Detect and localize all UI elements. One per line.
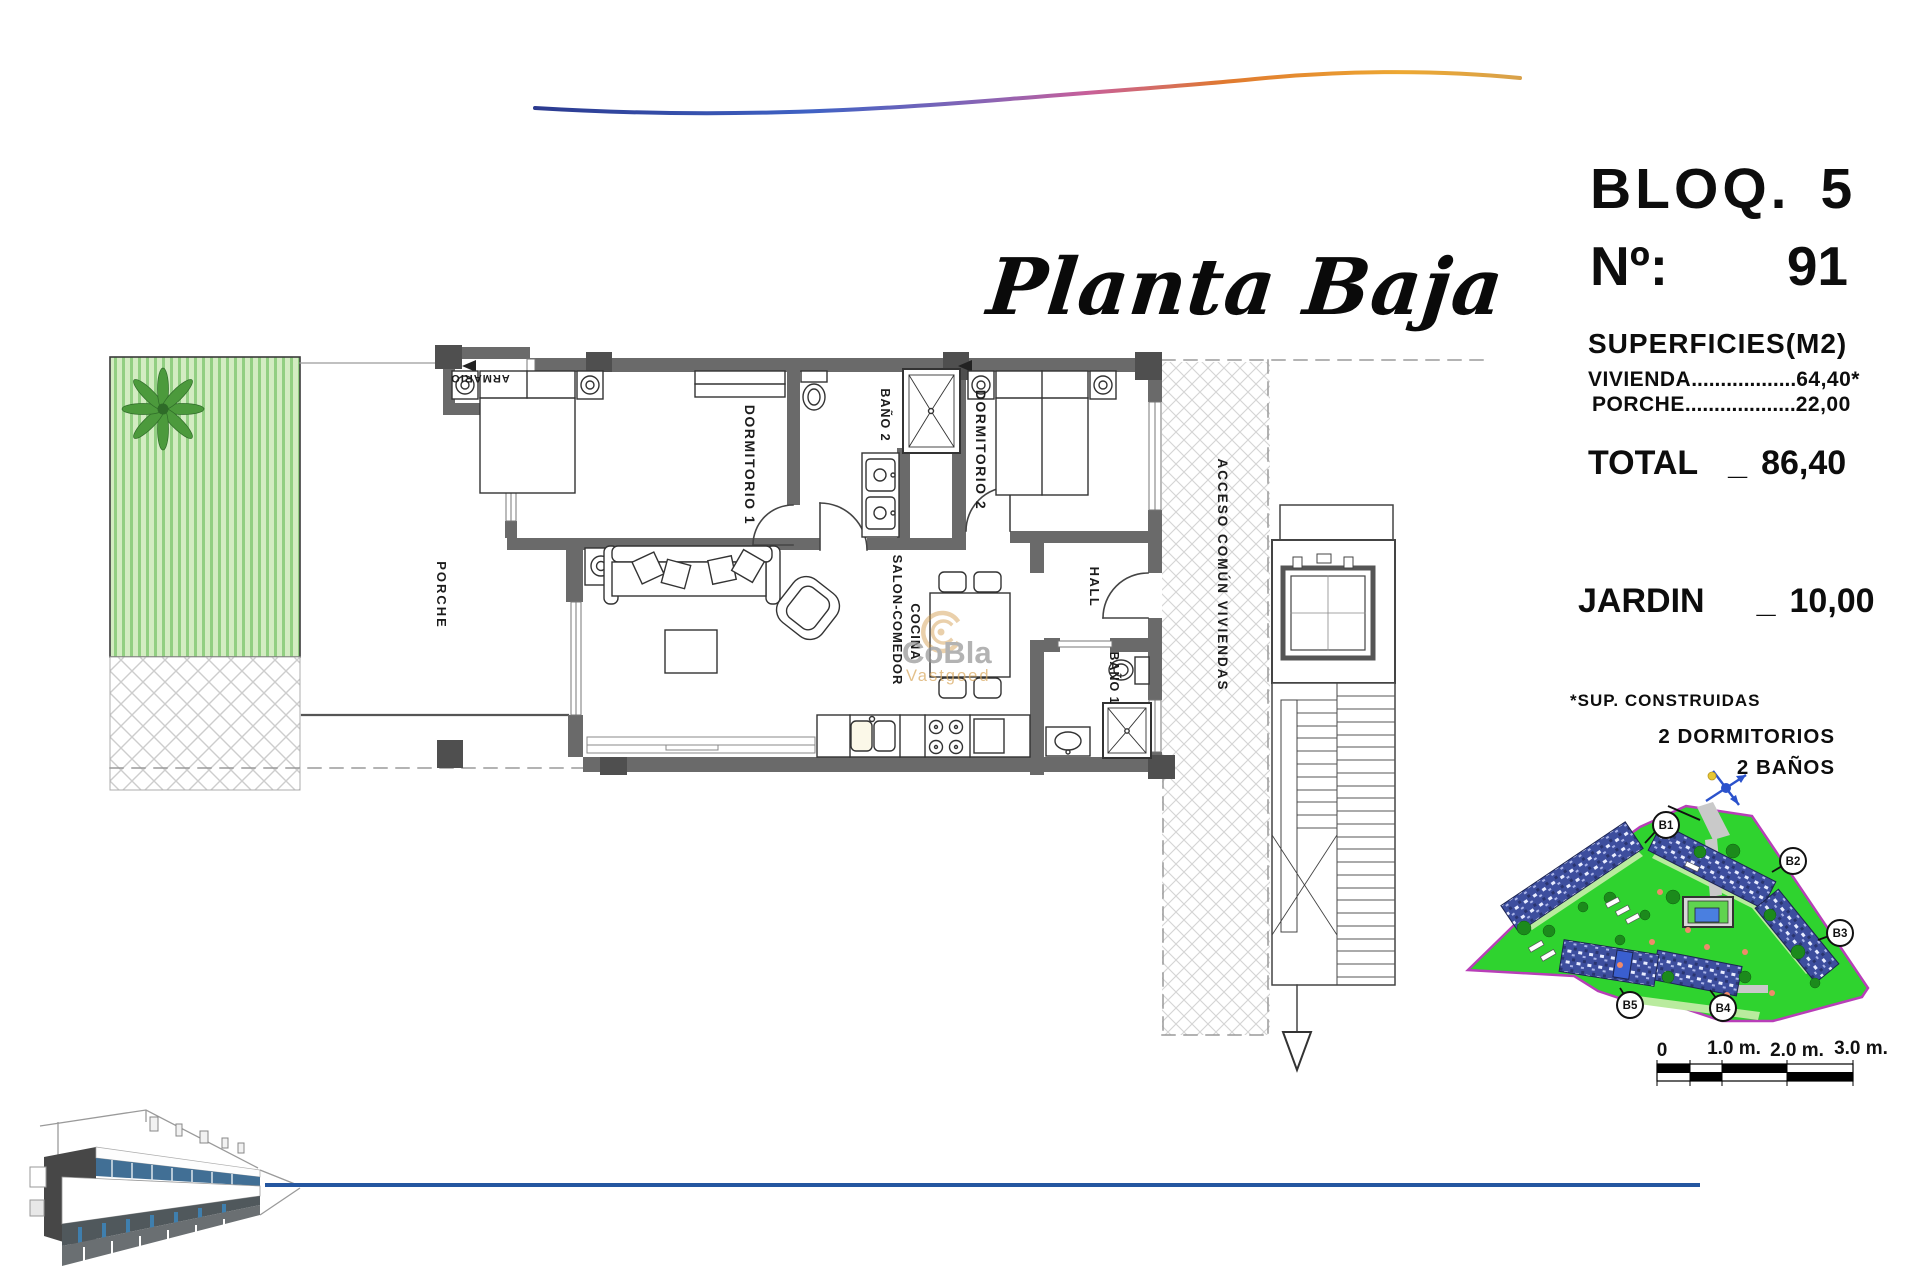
label-porche: PORCHE (434, 561, 449, 629)
label-dormitorio2: DORMITORIO 2 (973, 390, 989, 510)
surface-row-vivienda: VIVIENDA..................64,40* (1588, 368, 1860, 392)
total-label: TOTAL (1588, 444, 1698, 483)
floor-plan: ARMARIO DORMITORIO 1 BAÑO 2 DORMITORIO 2… (110, 345, 1490, 1070)
unit-number-label: Nº: (1590, 234, 1668, 298)
label-bano1: BAÑO 1 (1107, 651, 1122, 704)
surface-label: VIVIENDA (1588, 368, 1691, 391)
block-label-b4: B4 (1716, 1003, 1731, 1015)
total-separator: _ (1728, 444, 1747, 483)
label-dormitorio1: DORMITORIO 1 (742, 405, 758, 525)
block-label-b2: B2 (1786, 856, 1801, 868)
jardin-value: 10,00 (1790, 582, 1875, 621)
footnote: *SUP. CONSTRUIDAS (1570, 691, 1761, 711)
surfaces-heading: SUPERFICIES(M2) (1588, 328, 1847, 360)
surface-value: 22,00 (1796, 393, 1851, 416)
block-heading: BLOQ. 5 (1590, 156, 1856, 222)
watermark-brand: CoBla (902, 635, 992, 670)
feature-dormitorios: 2 DORMITORIOS (1658, 721, 1835, 752)
scale-label-2: 2.0 m. (1770, 1040, 1824, 1061)
scale-label-1: 1.0 m. (1707, 1038, 1761, 1059)
block-value: 5 (1821, 156, 1857, 222)
scale-label-0: 0 (1657, 1040, 1668, 1061)
feature-banos: 2 BAÑOS (1658, 752, 1835, 783)
building-3d-render (30, 1110, 300, 1266)
jardin-row: JARDIN _ 10,00 (1578, 582, 1875, 621)
page-title: Planta Baja (983, 242, 1508, 333)
watermark-sub: Vastgoed (906, 667, 991, 685)
label-armario: ARMARIO (450, 372, 510, 384)
leader-dots: ................... (1685, 393, 1796, 416)
furniture (452, 369, 1151, 758)
block-label-b5: B5 (1623, 1000, 1638, 1012)
unit-number-value: 91 (1787, 234, 1848, 298)
unit-number-row: Nº: 91 (1590, 234, 1848, 298)
stairwell-and-elevator (1272, 505, 1395, 1070)
site-pool (1683, 897, 1733, 927)
block-label-b1: B1 (1659, 820, 1674, 832)
garden-area (110, 357, 300, 790)
top-wave-decoration (535, 72, 1520, 113)
label-acceso: ACCESO COMÚN VIVIENDAS (1215, 458, 1230, 691)
surface-row-porche: PORCHE...................22,00 (1592, 393, 1851, 417)
total-value: 86,40 (1761, 444, 1846, 483)
block-label-b3: B3 (1833, 928, 1848, 940)
scale-bar: 0 1.0 m. 2.0 m. 3.0 m. (1657, 1038, 1888, 1086)
surface-value: 64,40* (1796, 368, 1860, 391)
drawing-sheet: ARMARIO DORMITORIO 1 BAÑO 2 DORMITORIO 2… (0, 0, 1920, 1280)
jardin-label: JARDIN (1578, 582, 1705, 621)
surface-label: PORCHE (1592, 393, 1685, 416)
jardin-separator: _ (1757, 582, 1776, 621)
label-hall: HALL (1087, 567, 1102, 608)
label-bano2: BAÑO 2 (878, 388, 893, 441)
palm-tree-icon (122, 368, 204, 450)
leader-dots: .................. (1691, 368, 1796, 391)
feature-list: 2 DORMITORIOS 2 BAÑOS (1658, 721, 1835, 783)
scale-label-3: 3.0 m. (1834, 1038, 1888, 1059)
site-plan: B1 B2 B3 B4 B5 (1468, 802, 1868, 1021)
block-label: BLOQ. (1590, 156, 1791, 222)
total-row: TOTAL _ 86,40 (1588, 444, 1846, 483)
